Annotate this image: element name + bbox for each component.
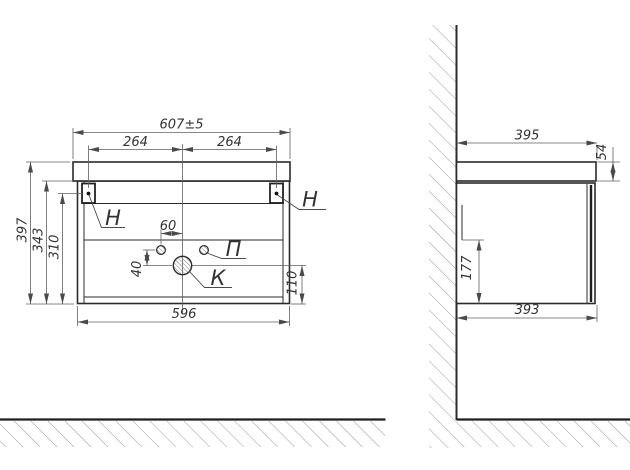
drain-hole	[173, 256, 191, 274]
dim-text-hanger-height: 310	[48, 235, 63, 260]
cabinet-body-side	[457, 183, 596, 304]
pilot-hole-left	[157, 246, 166, 255]
label-pilot-holes: П	[226, 237, 242, 261]
technical-drawing-page: 607±5 264 264 397 343 310	[0, 0, 630, 470]
wall-hatching	[429, 25, 457, 448]
drawing-canvas: 607±5 264 264 397 343 310	[0, 0, 630, 470]
countertop-side	[457, 162, 597, 181]
dim-top-thickness: 54	[595, 144, 620, 181]
dim-text-body-width: 596	[172, 307, 197, 322]
label-hanger-right: Н	[302, 188, 318, 212]
dim-heights-left: 397 343 310	[16, 162, 83, 304]
floor	[0, 420, 630, 448]
countertop-front	[73, 162, 290, 181]
label-drain-hole: К	[211, 266, 227, 290]
dim-top-depth: 395	[457, 129, 598, 161]
floor-hatching-left	[0, 421, 385, 447]
dim-text-body-depth: 393	[515, 303, 540, 318]
dim-text-body-height: 343	[32, 228, 47, 253]
floor-hatching-right	[457, 421, 630, 447]
dim-body-depth: 393	[457, 303, 598, 322]
dim-text-top-thickness: 54	[595, 144, 610, 161]
dim-text-hanger-spacing-left: 264	[123, 135, 148, 150]
dim-body-width: 596	[78, 306, 290, 326]
dim-text-top-depth: 395	[515, 129, 540, 144]
dim-text-overall-height: 397	[16, 217, 31, 243]
cabinet-body-front	[78, 181, 290, 304]
dim-text-overall-width: 607±5	[160, 118, 204, 133]
dim-text-hanger-spacing-right: 264	[217, 135, 242, 150]
front-view: 607±5 264 264 397 343 310	[16, 118, 327, 327]
label-hanger-left: Н	[105, 206, 121, 230]
dim-text-hole-offset: 60	[160, 219, 177, 234]
dim-text-hole-gap: 40	[130, 261, 145, 278]
hanger-hole-left	[87, 192, 91, 196]
dim-overall-width: 607±5	[73, 118, 290, 160]
side-view: 395 54 177 393	[429, 25, 620, 448]
dim-text-back-rail-height: 177	[460, 255, 475, 281]
dim-text-drain-height: 110	[286, 271, 301, 296]
